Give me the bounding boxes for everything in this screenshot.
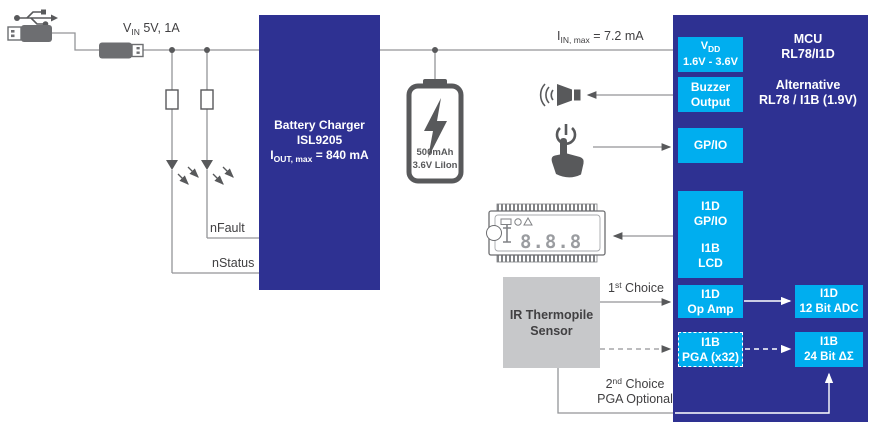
led-icon xyxy=(201,160,213,170)
vdd-block: VDD 1.6V - 3.6V xyxy=(678,37,743,72)
battery-indicator-glyph xyxy=(501,219,511,225)
opamp-block: I1D Op Amp xyxy=(678,285,743,318)
battery-label: 500mAh 3.6V LiIon xyxy=(404,146,466,172)
lcd-digits: 8.8.8 xyxy=(520,231,582,253)
first-choice-label: 1st Choice xyxy=(608,280,664,295)
ir-thermopile-sensor-block: IR Thermopile Sensor xyxy=(503,277,600,368)
mcu-alternative-label: Alternative RL78 / I1B (1.9V) xyxy=(748,78,868,108)
battery-charger-label: Battery Charger ISL9205 IOUT, max = 840 … xyxy=(259,118,380,167)
resistor-icon xyxy=(201,90,213,109)
clock-glyph xyxy=(515,219,521,225)
warning-glyph xyxy=(524,218,532,225)
iin-label: IIN, max = 7.2 mA xyxy=(557,29,644,45)
resistor-icon xyxy=(166,90,178,109)
hand-icon xyxy=(552,138,584,177)
junction-dot xyxy=(169,47,175,53)
delta-sigma-block: I1B 24 Bit ΔΣ xyxy=(795,332,863,367)
second-choice-label: 2nd Choice PGA Optional xyxy=(596,374,674,407)
buzzer-output-block: Buzzer Output xyxy=(678,77,743,112)
pga-block: I1B PGA (x32) xyxy=(678,332,743,367)
adc-block: I1D 12 Bit ADC xyxy=(795,285,863,318)
block-diagram: 500mAh 3.6V LiIon 8.8.8 VIN 5V, 1A IIN, … xyxy=(0,0,883,428)
junction-dot xyxy=(432,47,438,53)
gpio-block: GP/IO xyxy=(678,128,743,163)
i1d-gpio-i1b-lcd-block: I1D GP/IO I1B LCD xyxy=(678,191,743,278)
junction-dot xyxy=(204,47,210,53)
mcu-title: MCU RL78/I1D xyxy=(748,32,868,62)
nstatus-label: nStatus xyxy=(212,256,254,270)
vin-label: VIN 5V, 1A xyxy=(123,21,180,37)
led-icon xyxy=(166,160,178,170)
nfault-label: nFault xyxy=(210,221,245,235)
